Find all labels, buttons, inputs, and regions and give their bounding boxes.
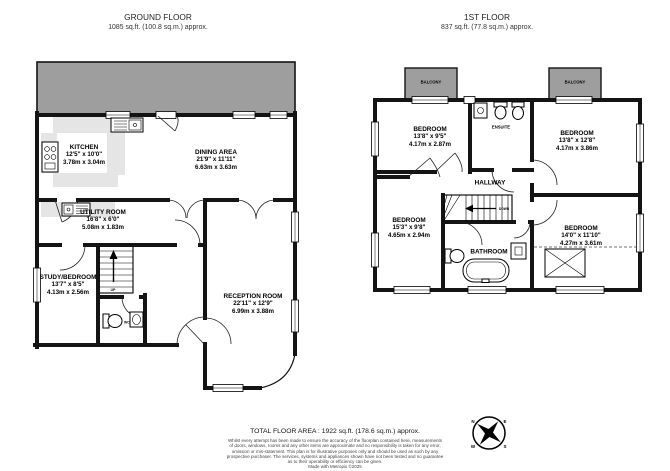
wc-label: WC bbox=[124, 321, 130, 325]
bathroom-toilet-icon bbox=[445, 249, 464, 263]
first-floor-title: 1ST FLOOR 837 sq.ft. (77.8 sq.m.) approx… bbox=[441, 13, 533, 32]
bathtub-icon bbox=[463, 259, 509, 283]
bay-window bbox=[260, 354, 295, 388]
room-label-balcony-left: BALCONY bbox=[421, 80, 442, 85]
room-label-balcony-right: BALCONY bbox=[565, 80, 586, 85]
ground-floor-plan: UP WC bbox=[34, 62, 299, 392]
room-label-dining: DINING AREA 21'9" x 11'11" 6.63m x 3.63m bbox=[195, 149, 237, 171]
first-floor-plan: DOWN bbox=[372, 68, 644, 294]
wc-basin-icon bbox=[130, 312, 143, 327]
room-label-reception: RECEPTION ROOM 22'11" x 12'9" 6.99m x 3.… bbox=[224, 293, 283, 315]
ensuite-basin-icon bbox=[494, 102, 507, 119]
up-label: UP bbox=[111, 288, 116, 292]
hob-icon bbox=[42, 142, 58, 172]
bathroom-shower-tray-icon bbox=[511, 243, 526, 259]
stairs-down-icon: DOWN bbox=[443, 195, 512, 222]
compass-w: W bbox=[471, 444, 476, 449]
down-label: DOWN bbox=[499, 207, 510, 211]
room-label-utility: UTILITY ROOM 16'8" x 6'0" 5.08m x 1.83m bbox=[80, 209, 126, 231]
deck-area bbox=[37, 62, 295, 115]
ensuite-toilet-icon bbox=[512, 102, 524, 120]
room-label-bedroom-front-left: BEDROOM 13'8" x 9'5" 4.17m x 2.87m bbox=[409, 126, 451, 148]
ensuite-shower-icon bbox=[474, 103, 487, 118]
compass-s: S bbox=[503, 444, 506, 449]
disclaimer: Whilst every attempt has been made to en… bbox=[227, 438, 444, 470]
shower-enclosure bbox=[459, 222, 482, 245]
room-label-bedroom-back-right: BEDROOM 14'0" x 11'10" 4.27m x 3.61m bbox=[560, 225, 602, 247]
floorplan-page: UP WC bbox=[0, 0, 670, 471]
compass-n: N bbox=[471, 419, 474, 424]
kitchen-sink-icon bbox=[111, 118, 143, 132]
room-label-bathroom: BATHROOM bbox=[470, 248, 507, 255]
stairs-up-icon: UP bbox=[98, 245, 133, 293]
room-label-kitchen: KITCHEN 12'5" x 10'0" 3.78m x 3.04m bbox=[63, 144, 105, 166]
disclaimer-line: of doors, windows, rooms and any other i… bbox=[227, 443, 444, 448]
compass-e: E bbox=[503, 419, 506, 424]
room-label-study: STUDY/BEDROOM 13'7" x 8'5" 4.13m x 2.56m bbox=[40, 274, 97, 296]
skylight-icon bbox=[545, 249, 585, 277]
room-label-hallway: HALLWAY bbox=[475, 179, 506, 186]
room-label-bedroom-back-left: BEDROOM 15'3" x 9'8" 4.65m x 2.94m bbox=[388, 217, 430, 239]
ground-floor-title: GROUND FLOOR 1085 sq.ft. (100.8 sq.m.) a… bbox=[108, 13, 208, 32]
credit-line: Made with Metropix ©2025 bbox=[227, 464, 444, 469]
wc-toilet-icon: WC bbox=[103, 314, 130, 328]
room-label-bedroom-front-right: BEDROOM 13'8" x 12'8" 4.17m x 3.86m bbox=[556, 130, 598, 152]
total-floor-area: TOTAL FLOOR AREA : 1922 sq.ft. (178.6 sq… bbox=[250, 428, 420, 435]
room-label-ensuite: ENSUITE bbox=[492, 125, 510, 130]
compass-icon: N E S W bbox=[471, 417, 507, 449]
